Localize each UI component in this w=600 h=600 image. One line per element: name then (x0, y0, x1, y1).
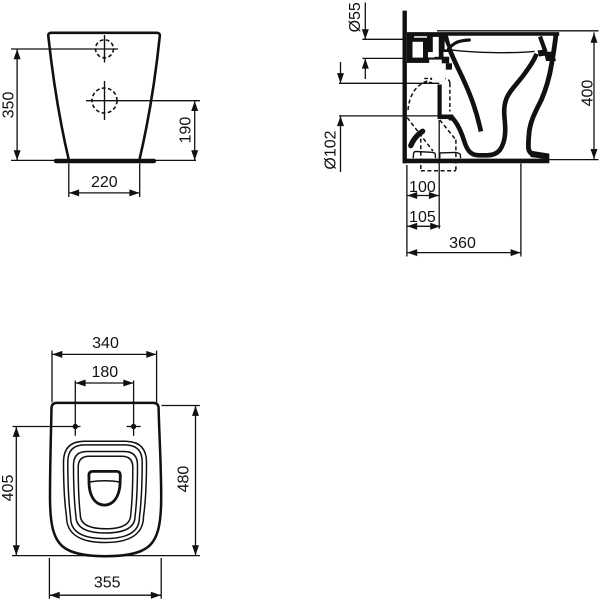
svg-text:400: 400 (579, 80, 596, 107)
svg-text:Ø102: Ø102 (323, 130, 340, 169)
svg-text:190: 190 (178, 117, 195, 144)
svg-text:355: 355 (94, 575, 121, 592)
svg-text:105: 105 (409, 209, 436, 226)
svg-text:480: 480 (176, 466, 193, 493)
svg-text:180: 180 (91, 364, 118, 381)
svg-text:340: 340 (92, 335, 119, 352)
svg-text:405: 405 (0, 475, 17, 502)
svg-text:Ø55: Ø55 (347, 2, 364, 32)
svg-text:350: 350 (1, 92, 18, 119)
svg-text:360: 360 (449, 235, 476, 252)
svg-text:100: 100 (409, 179, 436, 196)
svg-text:220: 220 (91, 174, 118, 191)
